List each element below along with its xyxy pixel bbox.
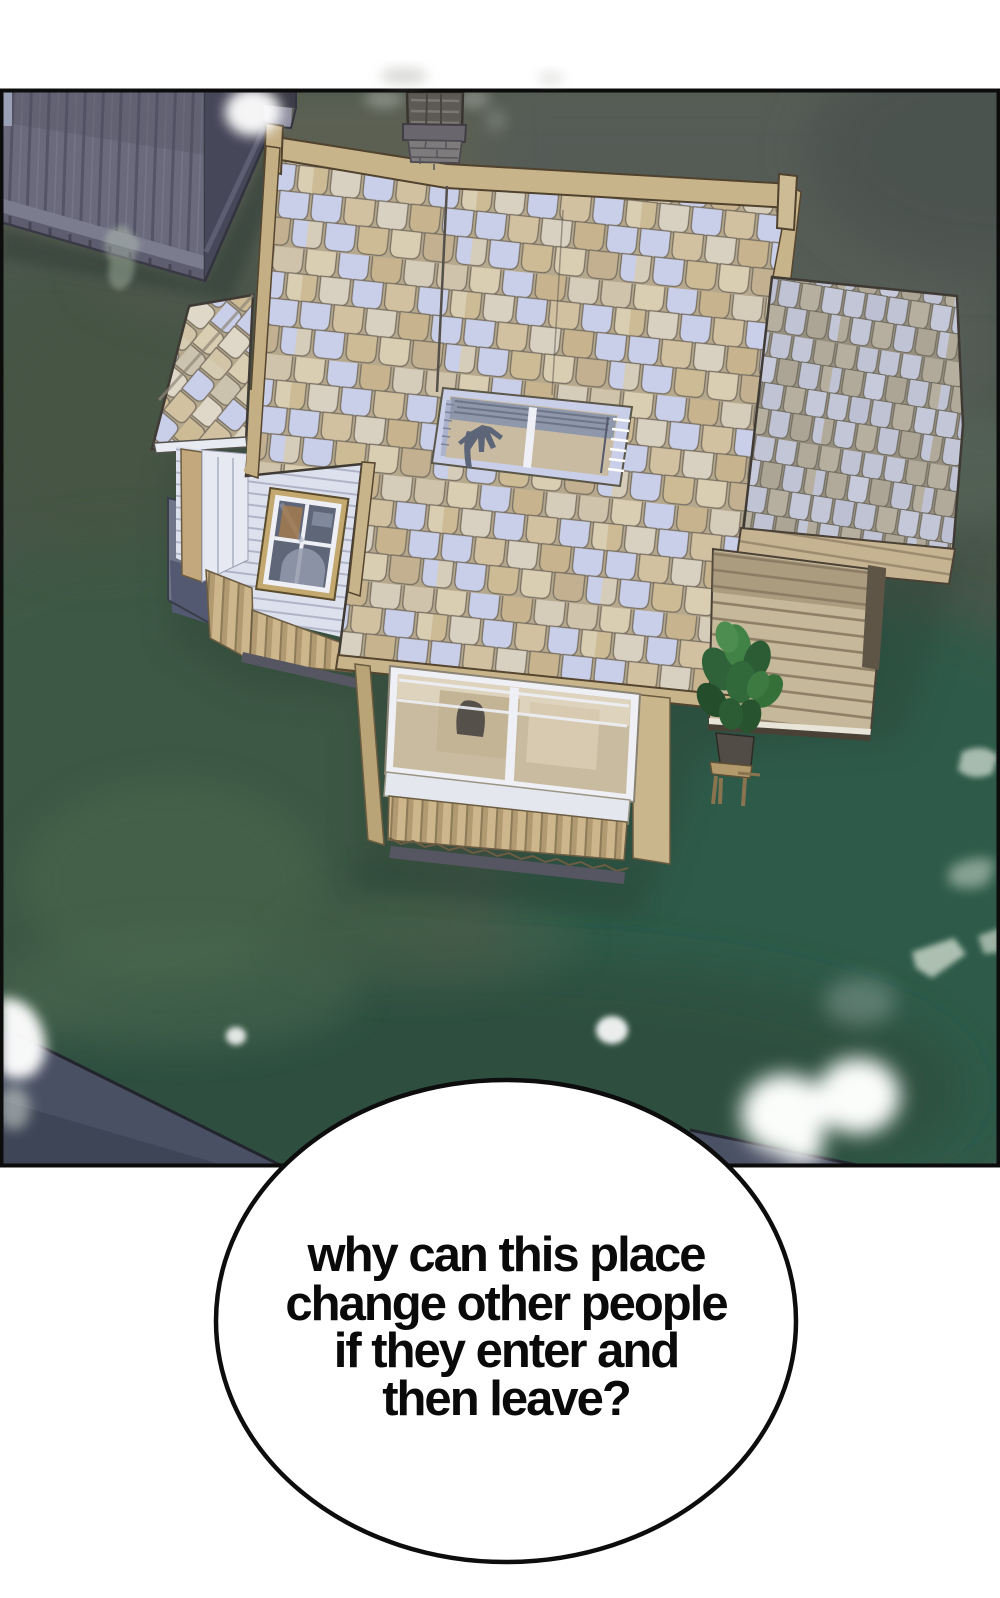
svg-text:if they enter and: if they enter and [334,1324,678,1378]
svg-text:change other people: change other people [285,1277,727,1331]
svg-text:then leave?: then leave? [382,1372,630,1426]
svg-text:why can this place: why can this place [307,1228,706,1282]
